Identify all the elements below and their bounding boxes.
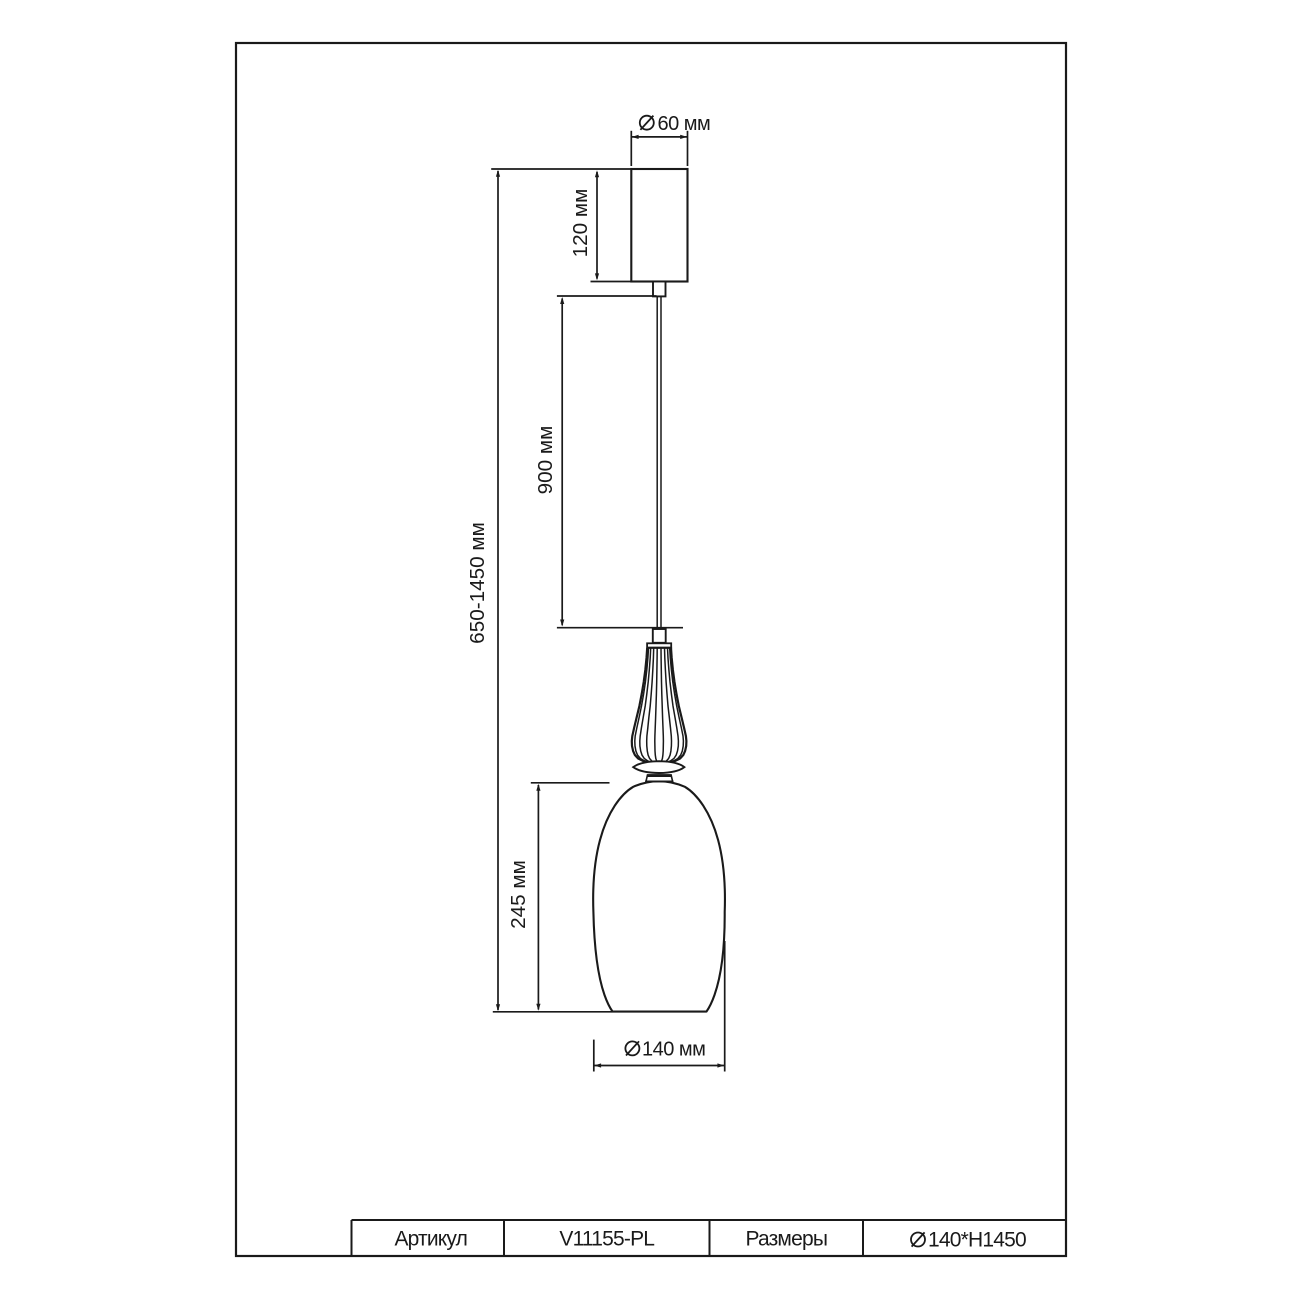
svg-text:140*H1450: 140*H1450 [928, 1228, 1026, 1251]
svg-text:245 мм: 245 мм [507, 860, 530, 929]
svg-text:900 мм: 900 мм [534, 426, 557, 495]
svg-text:650-1450 мм: 650-1450 мм [466, 522, 489, 644]
svg-text:140 мм: 140 мм [642, 1039, 705, 1061]
svg-text:Артикул: Артикул [394, 1228, 467, 1251]
svg-text:V11155-PL: V11155-PL [559, 1228, 654, 1251]
svg-text:60 мм: 60 мм [658, 113, 711, 135]
svg-text:Размеры: Размеры [745, 1228, 827, 1251]
svg-text:120 мм: 120 мм [569, 189, 592, 258]
